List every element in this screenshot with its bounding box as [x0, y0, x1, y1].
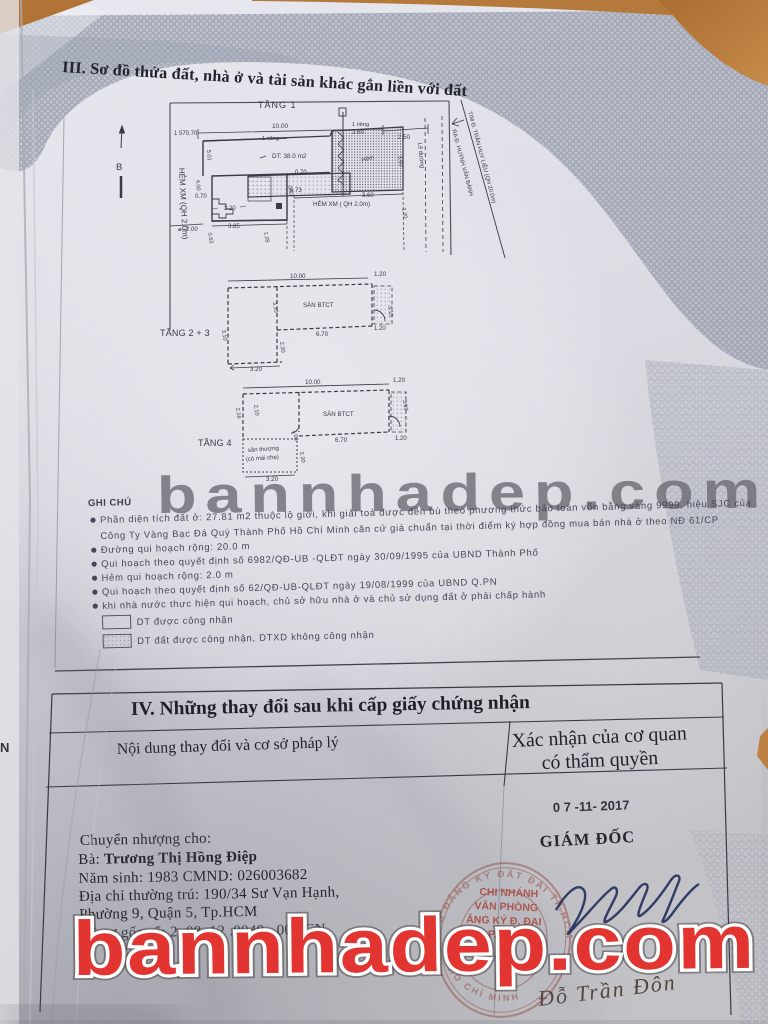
- svg-text:TẦNG 1: TẦNG 1: [258, 100, 297, 110]
- svg-text:N: N: [0, 740, 9, 755]
- svg-text:3.85: 3.85: [228, 224, 240, 230]
- svg-text:SÀN BTCT: SÀN BTCT: [303, 302, 334, 309]
- svg-text:6.70: 6.70: [335, 437, 348, 444]
- svg-text:1 570.70: 1 570.70: [174, 131, 198, 137]
- svg-text:5.01: 5.01: [205, 150, 212, 161]
- svg-text:TẦNG 2 + 3: TẦNG 2 + 3: [160, 328, 210, 338]
- svg-text:3.60: 3.60: [362, 193, 374, 199]
- svg-text:0.70: 0.70: [295, 170, 307, 176]
- svg-text:0.70: 0.70: [195, 194, 207, 200]
- svg-text:0 7 -11- 2017: 0 7 -11- 2017: [553, 797, 630, 815]
- svg-text:1 riêng: 1 riêng: [352, 122, 369, 128]
- svg-text:TẦNG 4: TẦNG 4: [198, 438, 232, 448]
- svg-text:SÀN BTCT: SÀN BTCT: [323, 411, 354, 418]
- svg-text:bannhadep.com: bannhadep.com: [72, 899, 756, 992]
- svg-text:1.20: 1.20: [374, 326, 386, 332]
- svg-text:3.20: 3.20: [224, 206, 236, 212]
- svg-text:DT: 38.0 m2: DT: 38.0 m2: [272, 153, 307, 160]
- svg-text:10.00: 10.00: [272, 123, 288, 130]
- svg-text:1.20: 1.20: [374, 271, 387, 278]
- svg-text:1.20: 1.20: [395, 436, 407, 442]
- svg-text:10.00: 10.00: [305, 379, 321, 386]
- svg-text:B: B: [116, 162, 122, 173]
- svg-text:10.00: 10.00: [290, 273, 306, 280]
- svg-text:4.00: 4.00: [194, 180, 201, 191]
- svg-text:1.20: 1.20: [393, 377, 406, 384]
- svg-text:GHI CHÚ: GHI CHÚ: [88, 496, 132, 509]
- svg-text:HẺM XM ( QH 2.0m): HẺM XM ( QH 2.0m): [313, 201, 370, 208]
- svg-text:6.70: 6.70: [316, 331, 329, 338]
